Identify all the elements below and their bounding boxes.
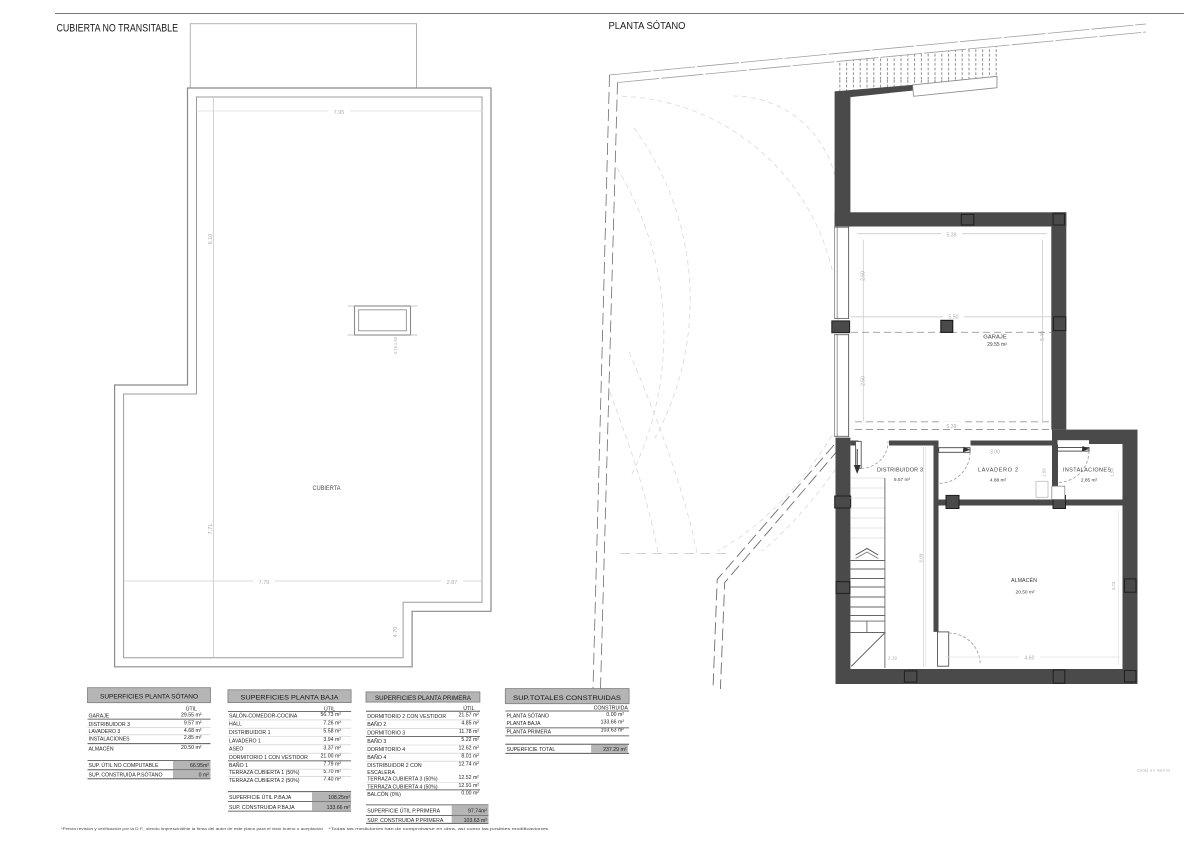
svg-text:5.58 m²: 5.58 m² — [323, 729, 341, 735]
svg-text:*Previa revisión y verificació: *Previa revisión y verificación por la D… — [61, 826, 323, 831]
svg-text:BALCÓN (0%): BALCÓN (0%) — [367, 791, 401, 798]
svg-text:133.66 m²: 133.66 m² — [601, 720, 625, 726]
svg-text:SUPERFICIE ÚTIL P.PRIMERA: SUPERFICIE ÚTIL P.PRIMERA — [367, 807, 440, 814]
svg-text:237.29 m²: 237.29 m² — [603, 747, 627, 753]
svg-text:DISTRIBUIDOR 1: DISTRIBUIDOR 1 — [229, 730, 271, 736]
svg-text:3.94 m²: 3.94 m² — [323, 737, 341, 743]
svg-text:103.63 m²: 103.63 m² — [601, 728, 625, 734]
svg-text:ASEO: ASEO — [229, 747, 243, 753]
svg-text:21.57 m²: 21.57 m² — [459, 712, 480, 718]
svg-text:LAVADERO 1: LAVADERO 1 — [229, 738, 261, 744]
svg-text:7.79 m²: 7.79 m² — [323, 762, 341, 768]
svg-text:PLANTA PRIMERA: PLANTA PRIMERA — [507, 729, 552, 735]
svg-text:SALÓN-COMEDOR-COCINA: SALÓN-COMEDOR-COCINA — [229, 713, 298, 720]
svg-text:9.57 m²: 9.57 m² — [184, 720, 202, 726]
svg-text:DORMITORIO 2 CON VESTIDOR: DORMITORIO 2 CON VESTIDOR — [367, 714, 446, 720]
svg-text:BAÑO 1: BAÑO 1 — [229, 762, 248, 769]
svg-text:LAVADERO 3: LAVADERO 3 — [89, 729, 121, 735]
svg-text:ESCALERA: ESCALERA — [367, 770, 395, 776]
svg-text:TERRAZA CUBIERTA 3 (50%): TERRAZA CUBIERTA 3 (50%) — [367, 776, 438, 782]
svg-text:Cotas en metros: Cotas en metros — [1137, 769, 1170, 773]
svg-text:29.55 m²: 29.55 m² — [987, 342, 1007, 348]
svg-text:PLANTA SÓTANO: PLANTA SÓTANO — [609, 19, 686, 32]
svg-text:INSTALACIONES: INSTALACIONES — [89, 736, 131, 742]
svg-text:HALL: HALL — [229, 722, 242, 728]
svg-text:2.19: 2.19 — [888, 656, 897, 661]
svg-text:TERRAZA CUBIERTA 2 (50%): TERRAZA CUBIERTA 2 (50%) — [229, 778, 300, 784]
svg-text:5.09: 5.09 — [919, 553, 924, 562]
svg-text:20.50 m²: 20.50 m² — [1016, 590, 1035, 596]
svg-text:1.58: 1.58 — [1042, 468, 1047, 477]
svg-text:SUPERFICIES PLANTA SÓTANO: SUPERFICIES PLANTA SÓTANO — [100, 692, 198, 701]
svg-text:INSTALACIONES: INSTALACIONES — [1063, 468, 1111, 474]
svg-text:4.68 m²: 4.68 m² — [184, 728, 202, 734]
svg-text:GARAJE: GARAJE — [983, 335, 1007, 341]
svg-text:21.00 m²: 21.00 m² — [321, 754, 342, 760]
svg-text:SUPERFICIE ÚTIL P.BAJA: SUPERFICIE ÚTIL P.BAJA — [229, 794, 292, 801]
svg-text:5.50: 5.50 — [948, 314, 958, 320]
svg-text:*Todas las mediciones han de c: *Todas las mediciones han de comprobarse… — [329, 826, 549, 831]
svg-text:108.25m²: 108.25m² — [328, 795, 350, 801]
svg-text:SUPERFICIES PLANTA PRIMERA: SUPERFICIES PLANTA PRIMERA — [375, 695, 472, 702]
svg-text:4.88 m²: 4.88 m² — [990, 478, 1007, 484]
svg-text:SUP. CONSTRUIDA P.SÓTANO: SUP. CONSTRUIDA P.SÓTANO — [89, 772, 163, 779]
svg-text:3.37 m²: 3.37 m² — [323, 745, 341, 751]
svg-text:11.78 m²: 11.78 m² — [459, 729, 479, 735]
svg-text:7.95: 7.95 — [334, 110, 345, 116]
svg-text:5.39: 5.39 — [946, 424, 956, 430]
svg-text:CONSTRUIDA: CONSTRUIDA — [594, 705, 629, 711]
svg-text:4.23: 4.23 — [1111, 581, 1116, 590]
svg-text:BAÑO 4: BAÑO 4 — [367, 754, 386, 761]
svg-text:DORMITORIO 3: DORMITORIO 3 — [367, 730, 405, 736]
svg-text:4.85 m²: 4.85 m² — [461, 721, 479, 727]
svg-text:4.60: 4.60 — [1025, 655, 1035, 661]
svg-text:0.00 m²: 0.00 m² — [461, 790, 479, 796]
svg-text:7.40 m²: 7.40 m² — [323, 777, 341, 783]
svg-text:3.00: 3.00 — [990, 450, 1000, 456]
svg-text:DISTRIBUIDOR 2 CON: DISTRIBUIDOR 2 CON — [367, 763, 422, 769]
svg-text:7.71: 7.71 — [208, 524, 214, 535]
svg-text:ALMACÉN: ALMACÉN — [1011, 577, 1037, 584]
svg-text:0.00 m²: 0.00 m² — [606, 712, 624, 718]
svg-text:9.57 m²: 9.57 m² — [894, 477, 911, 483]
svg-text:DISTRIBUIDOR 3: DISTRIBUIDOR 3 — [89, 722, 131, 728]
svg-text:0 m²: 0 m² — [199, 773, 210, 779]
svg-text:SUPERFICIE TOTAL: SUPERFICIE TOTAL — [507, 747, 556, 753]
svg-text:2.87: 2.87 — [447, 580, 458, 586]
svg-text:103.63 m²: 103.63 m² — [464, 818, 488, 824]
svg-text:BAÑO 2: BAÑO 2 — [367, 721, 386, 728]
svg-text:133.66 m²: 133.66 m² — [327, 805, 351, 811]
svg-text:PLANTA SÓTANO: PLANTA SÓTANO — [507, 713, 549, 720]
svg-text:SUP. ÚTIL NO COMPUTABLE: SUP. ÚTIL NO COMPUTABLE — [89, 762, 159, 769]
svg-text:SUPERFICIES PLANTA BAJA: SUPERFICIES PLANTA BAJA — [241, 694, 340, 701]
svg-text:DORMITORIO 4: DORMITORIO 4 — [367, 747, 405, 753]
svg-text:0.75: 0.75 — [393, 345, 398, 354]
svg-text:SUP.TOTALES CONSTRUIDAS: SUP.TOTALES CONSTRUIDAS — [513, 695, 622, 702]
svg-text:7.79: 7.79 — [259, 580, 270, 586]
svg-text:ÚTIL: ÚTIL — [186, 705, 197, 712]
svg-text:29.55 m²: 29.55 m² — [181, 713, 202, 719]
svg-text:2.50: 2.50 — [861, 271, 867, 281]
svg-text:1.54: 1.54 — [1110, 468, 1115, 477]
svg-text:12.62 m²: 12.62 m² — [459, 746, 480, 752]
svg-text:5.39: 5.39 — [946, 232, 956, 238]
svg-text:1.50: 1.50 — [393, 336, 398, 345]
svg-text:TERRAZA CUBIERTA 1 (50%): TERRAZA CUBIERTA 1 (50%) — [229, 770, 300, 776]
svg-text:7.26 m²: 7.26 m² — [323, 720, 341, 726]
svg-text:6.10: 6.10 — [208, 234, 214, 245]
svg-text:ALMACÉN: ALMACÉN — [89, 745, 114, 752]
svg-text:DISTRIBUIDOR 3: DISTRIBUIDOR 3 — [877, 468, 923, 474]
svg-text:SUP. CONSTRUIDA P.BAJA: SUP. CONSTRUIDA P.BAJA — [229, 805, 295, 811]
svg-text:66.95m²: 66.95m² — [190, 763, 209, 769]
svg-text:4.70: 4.70 — [393, 627, 399, 638]
svg-text:20.50 m²: 20.50 m² — [181, 745, 202, 751]
svg-text:DORMITORIO 1 CON VESTIDOR: DORMITORIO 1 CON VESTIDOR — [229, 755, 308, 761]
svg-text:PLANTA BAJA: PLANTA BAJA — [507, 721, 541, 727]
svg-text:97.74m²: 97.74m² — [468, 808, 487, 814]
svg-text:BAÑO 3: BAÑO 3 — [367, 738, 386, 745]
svg-text:5.70 m²: 5.70 m² — [323, 769, 341, 775]
svg-text:CUBIERTA NO TRANSITABLE: CUBIERTA NO TRANSITABLE — [57, 23, 179, 35]
svg-text:2.85 m²: 2.85 m² — [1081, 478, 1098, 484]
svg-text:LAVADERO 2: LAVADERO 2 — [978, 468, 1018, 474]
svg-text:12.91 m²: 12.91 m² — [459, 783, 480, 789]
svg-text:56.73 m²: 56.73 m² — [321, 712, 342, 718]
svg-text:8.01 m²: 8.01 m² — [461, 754, 479, 760]
svg-text:2.50: 2.50 — [861, 376, 867, 386]
svg-text:12.74 m²: 12.74 m² — [459, 761, 480, 767]
svg-text:2.85 m²: 2.85 m² — [184, 735, 202, 741]
svg-text:12.52 m²: 12.52 m² — [459, 775, 480, 781]
svg-text:5.22 m²: 5.22 m² — [461, 737, 479, 743]
svg-text:CUBIERTA: CUBIERTA — [313, 485, 342, 492]
